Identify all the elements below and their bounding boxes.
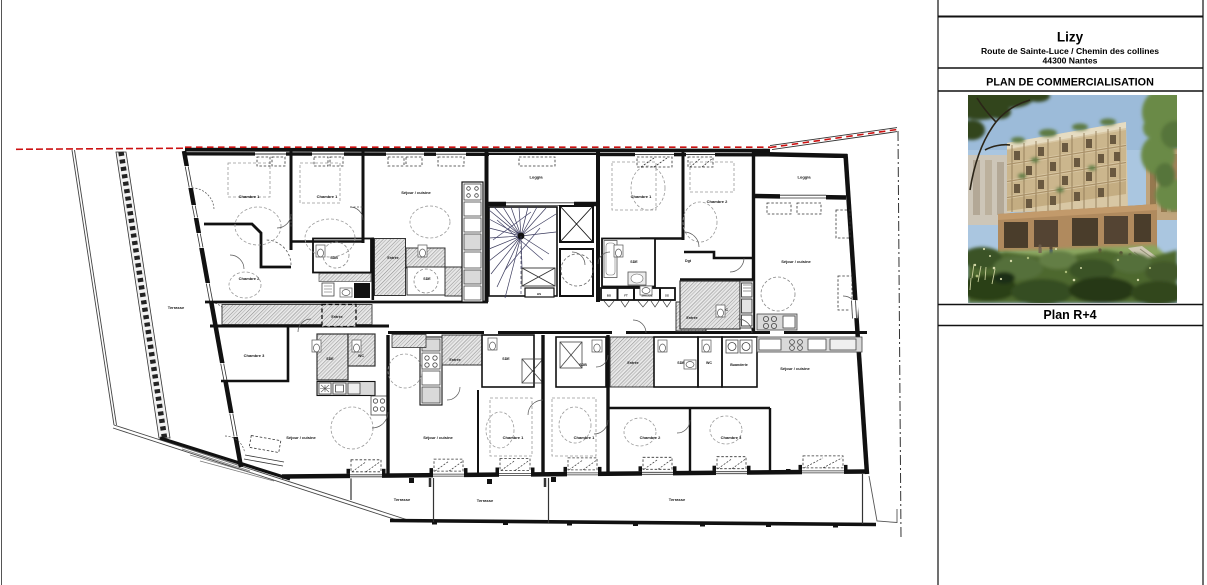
svg-text:Route de Sainte-Luce / Chemin: Route de Sainte-Luce / Chemin des collin… [981, 46, 1159, 56]
svg-text:Entrée: Entrée [449, 358, 460, 362]
svg-text:PLAN DE COMMERCIALISATION: PLAN DE COMMERCIALISATION [986, 77, 1154, 89]
svg-text:Dgt: Dgt [685, 259, 692, 263]
svg-text:Chambre 2: Chambre 2 [707, 199, 728, 204]
svg-text:Chambre 1: Chambre 1 [317, 194, 338, 199]
svg-text:Plan R+4: Plan R+4 [1043, 308, 1096, 322]
svg-text:SG: SG [665, 294, 669, 298]
svg-text:Chambre 3: Chambre 3 [244, 353, 265, 358]
svg-text:SDE: SDE [630, 260, 638, 264]
svg-text:Lizy: Lizy [1057, 30, 1084, 45]
svg-text:Buanderie: Buanderie [730, 363, 748, 367]
svg-text:Chambre 2: Chambre 2 [640, 435, 661, 440]
svg-text:Chambre 1: Chambre 1 [631, 194, 652, 199]
svg-text:Terrasse: Terrasse [477, 498, 494, 503]
svg-text:Chambre 1: Chambre 1 [239, 194, 260, 199]
svg-text:Entrée: Entrée [686, 316, 697, 320]
svg-text:HS: HS [537, 292, 541, 296]
svg-text:Chambre 3: Chambre 3 [721, 435, 742, 440]
svg-text:Séjour / cuisine: Séjour / cuisine [781, 259, 811, 264]
svg-text:FT: FT [624, 294, 628, 298]
svg-text:WC: WC [358, 354, 364, 358]
svg-text:SDB: SDB [579, 363, 587, 367]
svg-text:SDE: SDE [502, 357, 510, 361]
svg-text:Terrasse: Terrasse [669, 497, 686, 502]
svg-text:Entrée: Entrée [387, 256, 398, 260]
svg-text:Entrée: Entrée [331, 315, 342, 319]
svg-text:SDE: SDE [423, 277, 431, 281]
svg-text:SDE: SDE [326, 357, 334, 361]
svg-text:Chambre 1: Chambre 1 [503, 435, 524, 440]
svg-text:Loggia: Loggia [797, 175, 811, 180]
svg-text:Terrasse: Terrasse [394, 497, 411, 502]
svg-text:Loggia: Loggia [529, 175, 543, 180]
svg-text:Séjour / cuisine: Séjour / cuisine [423, 435, 453, 440]
svg-text:Chambre 2: Chambre 2 [239, 276, 260, 281]
svg-text:Séjour / cuisine: Séjour / cuisine [286, 435, 316, 440]
svg-text:Chambre 1: Chambre 1 [574, 435, 595, 440]
svg-text:Séjour / cuisine: Séjour / cuisine [401, 190, 431, 195]
svg-text:WC: WC [706, 361, 712, 365]
svg-text:SDB: SDB [330, 256, 338, 260]
svg-text:Entrée: Entrée [627, 361, 638, 365]
svg-text:44300 Nantes: 44300 Nantes [1043, 56, 1098, 66]
svg-text:Terrasse: Terrasse [168, 305, 185, 310]
svg-text:Séjour / cuisine: Séjour / cuisine [780, 366, 810, 371]
svg-text:SDE: SDE [677, 361, 685, 365]
